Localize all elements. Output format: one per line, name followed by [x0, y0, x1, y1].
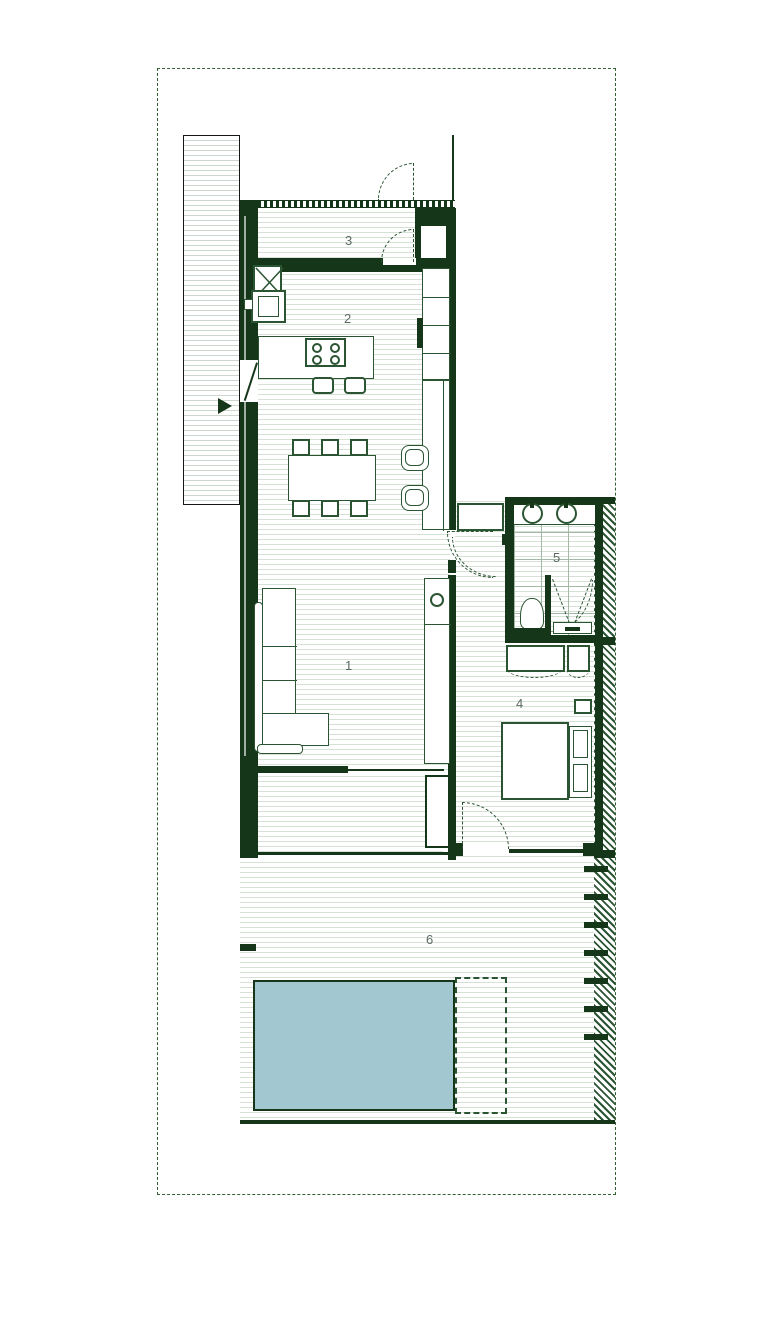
- cabinet-divider-1: [423, 297, 451, 298]
- toilet-base-bar: [514, 628, 548, 635]
- armchair-2: [401, 485, 429, 511]
- burner-3: [312, 355, 322, 365]
- sofa-chaise: [262, 713, 329, 746]
- pillow-1: [573, 730, 588, 758]
- entry-door-threshold: [381, 265, 418, 270]
- armchair-1-cushion: [405, 449, 424, 466]
- fireplace-column: [424, 578, 450, 764]
- room-label-entry: 3: [345, 234, 352, 247]
- bath-wall-bottom: [505, 635, 603, 643]
- terrace-stub: [240, 944, 256, 951]
- entry-door-leaf: [413, 229, 414, 262]
- gate-post-line: [452, 135, 454, 201]
- sofa-cushion-line-1: [263, 646, 297, 647]
- sink-right-tap: [564, 503, 568, 508]
- nightstand: [574, 699, 592, 714]
- burner-1: [312, 343, 322, 353]
- kitchen-wall-cabinets: [422, 268, 450, 380]
- porch-south-line: [240, 852, 455, 855]
- pool: [253, 980, 455, 1111]
- front-fence: [240, 200, 455, 208]
- room-label-bedroom: 4: [516, 697, 523, 710]
- wall-right-upper: [450, 208, 456, 530]
- sofa-armrest-left: [254, 602, 263, 752]
- fireplace-flue: [430, 593, 444, 607]
- living-south-glass: [348, 769, 444, 771]
- room-label-kitchen: 2: [344, 312, 351, 325]
- dining-chair-1: [292, 439, 310, 456]
- bath-wall-top: [505, 497, 603, 505]
- sink-left-tap: [530, 503, 534, 508]
- bedroom-door-leaf: [462, 802, 463, 849]
- bed-mattress: [501, 722, 569, 800]
- hall-closet: [457, 503, 504, 531]
- sofa-armrest-bottom: [257, 744, 303, 754]
- shower-drain: [565, 627, 580, 631]
- porch-column: [425, 775, 450, 848]
- kitchen-tap: [244, 299, 253, 310]
- toilet-bowl: [520, 598, 544, 630]
- gate-leaf: [413, 163, 414, 200]
- floor-plan: 3 2 1 4 5 6: [0, 0, 768, 1344]
- dining-table: [288, 455, 376, 501]
- room-label-terrace: 6: [426, 933, 433, 946]
- entrance-arrow: [218, 398, 232, 414]
- armchair-1: [401, 445, 429, 471]
- cabinet-divider-2: [423, 325, 451, 326]
- armchair-2-cushion: [405, 489, 424, 506]
- pool-deck-dashed: [455, 977, 507, 1114]
- bar-stool-2: [344, 377, 366, 394]
- room-label-living: 1: [345, 659, 352, 672]
- terrace-tick-4: [584, 950, 608, 956]
- bath-door-hinge: [502, 534, 511, 545]
- wall-right-outer: [595, 497, 603, 858]
- fireplace-divider: [425, 624, 451, 625]
- terrace-tick-2: [584, 894, 608, 900]
- dining-chair-5: [321, 500, 339, 517]
- bar-stool-1: [312, 377, 334, 394]
- dining-chair-6: [350, 500, 368, 517]
- kitchen-sink-basin: [258, 296, 279, 317]
- bedroom-south-corner-right: [583, 843, 603, 856]
- wall-left-lining: [244, 216, 246, 756]
- bath-wall-left: [505, 505, 514, 635]
- living-south-wall: [252, 766, 348, 773]
- terrace-tick-7: [584, 1034, 608, 1040]
- terrace-tick-3: [584, 922, 608, 928]
- room-label-bathroom: 5: [553, 551, 560, 564]
- terrace-tick-6: [584, 1006, 608, 1012]
- stove: [305, 338, 346, 367]
- burner-4: [330, 355, 340, 365]
- dining-chair-4: [292, 500, 310, 517]
- dining-chair-3: [350, 439, 368, 456]
- terrace-tick-1: [584, 866, 608, 872]
- sofa-cushion-line-2: [263, 680, 297, 681]
- partition-hinge-block: [448, 560, 456, 573]
- oven-handle-bar: [417, 318, 423, 348]
- entry-closet: [421, 226, 446, 258]
- burner-2: [330, 343, 340, 353]
- cabinet-divider-3: [423, 353, 451, 354]
- terrace-south-edge: [240, 1120, 615, 1124]
- tall-cabinet-line: [443, 381, 444, 531]
- terrace-tick-5: [584, 978, 608, 984]
- driveway: [183, 135, 240, 505]
- dining-chair-2: [321, 439, 339, 456]
- porch-floor: [258, 772, 443, 854]
- pillow-2: [573, 764, 588, 792]
